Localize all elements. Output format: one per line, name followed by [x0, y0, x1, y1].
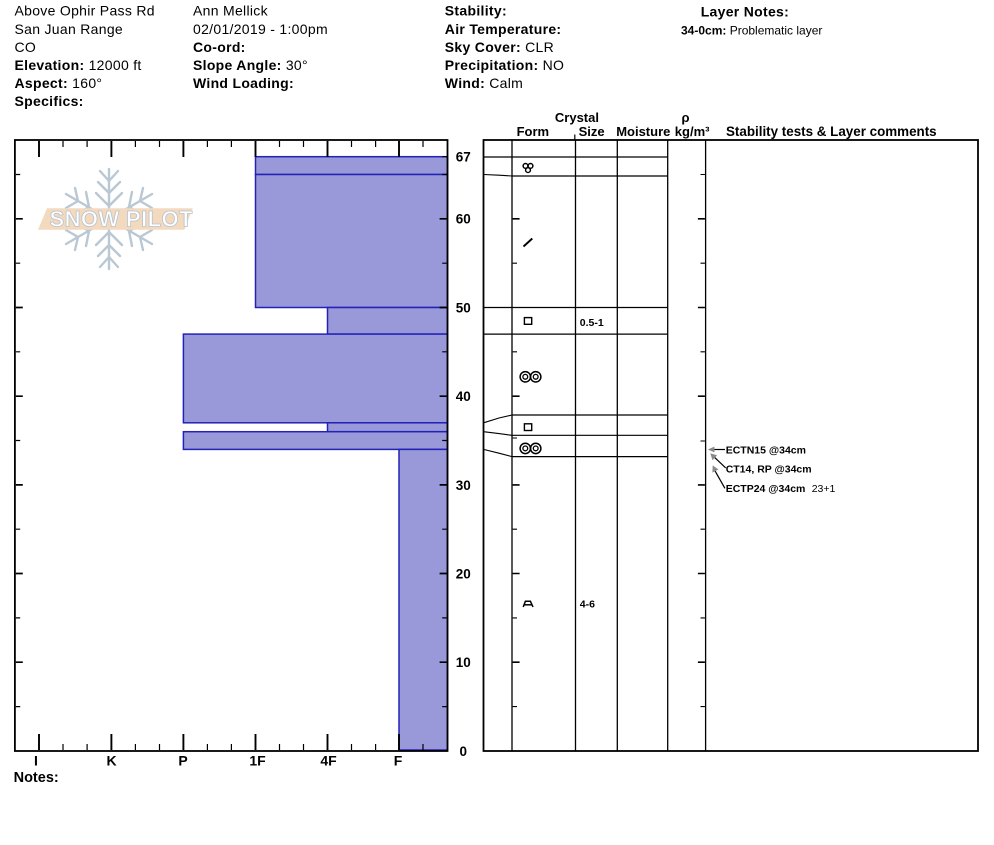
svg-text:Co-ord:: Co-ord: — [193, 39, 246, 55]
svg-text:Slope Angle: 30°: Slope Angle: 30° — [193, 57, 308, 73]
svg-text:Stability:: Stability: — [445, 3, 507, 19]
svg-text:I: I — [34, 752, 38, 768]
svg-text:CT14, RP @34cm: CT14, RP @34cm — [726, 463, 812, 475]
svg-text:4F: 4F — [320, 752, 337, 768]
svg-text:P: P — [178, 752, 187, 768]
svg-text:kg/m³: kg/m³ — [675, 124, 710, 139]
svg-text:SNOW PILOT: SNOW PILOT — [50, 207, 193, 232]
svg-text:4-6: 4-6 — [580, 599, 595, 611]
svg-text:Size: Size — [579, 124, 605, 139]
svg-text:34-0cm: Problematic layer: 34-0cm: Problematic layer — [681, 24, 822, 38]
svg-text:50: 50 — [456, 300, 471, 315]
svg-text:Stability tests & Layer commen: Stability tests & Layer comments — [726, 124, 937, 139]
svg-text:30: 30 — [456, 478, 471, 493]
svg-text:Wind Loading:: Wind Loading: — [193, 75, 294, 91]
svg-text:Elevation: 12000 ft: Elevation: 12000 ft — [15, 57, 142, 73]
svg-text:Air Temperature:: Air Temperature: — [445, 21, 562, 37]
svg-text:23+1: 23+1 — [812, 483, 836, 495]
svg-text:Specifics:: Specifics: — [15, 93, 84, 109]
svg-text:Layer Notes:: Layer Notes: — [701, 3, 789, 19]
svg-text:02/01/2019 - 1:00pm: 02/01/2019 - 1:00pm — [193, 21, 328, 37]
svg-text:Crystal: Crystal — [555, 110, 599, 125]
svg-text:Moisture: Moisture — [616, 124, 670, 139]
svg-text:1F: 1F — [249, 752, 266, 768]
svg-text:Notes:: Notes: — [14, 770, 59, 786]
svg-text:ECTP24 @34cm: ECTP24 @34cm — [726, 483, 806, 495]
svg-text:Ann Mellick: Ann Mellick — [193, 3, 269, 19]
svg-text:20: 20 — [456, 566, 471, 581]
svg-text:60: 60 — [456, 212, 471, 227]
svg-text:Aspect: 160°: Aspect: 160° — [15, 75, 103, 91]
svg-text:10: 10 — [456, 655, 471, 670]
svg-text:Above Ophir Pass Rd: Above Ophir Pass Rd — [15, 3, 155, 19]
svg-text:0.5-1: 0.5-1 — [580, 317, 604, 329]
svg-text:Form: Form — [517, 124, 550, 139]
svg-text:San Juan Range: San Juan Range — [15, 21, 124, 37]
svg-text:40: 40 — [456, 389, 471, 404]
svg-text:ECTN15 @34cm: ECTN15 @34cm — [726, 444, 806, 456]
svg-text:K: K — [106, 752, 116, 768]
svg-text:ρ: ρ — [682, 110, 690, 125]
svg-text:67: 67 — [456, 150, 471, 165]
svg-text:F: F — [394, 752, 403, 768]
svg-text:Sky Cover: CLR: Sky Cover: CLR — [445, 39, 554, 55]
svg-text:Precipitation: NO: Precipitation: NO — [445, 57, 564, 73]
svg-text:Wind: Calm: Wind: Calm — [445, 75, 523, 91]
svg-text:0: 0 — [460, 744, 468, 759]
svg-text:CO: CO — [15, 39, 37, 55]
